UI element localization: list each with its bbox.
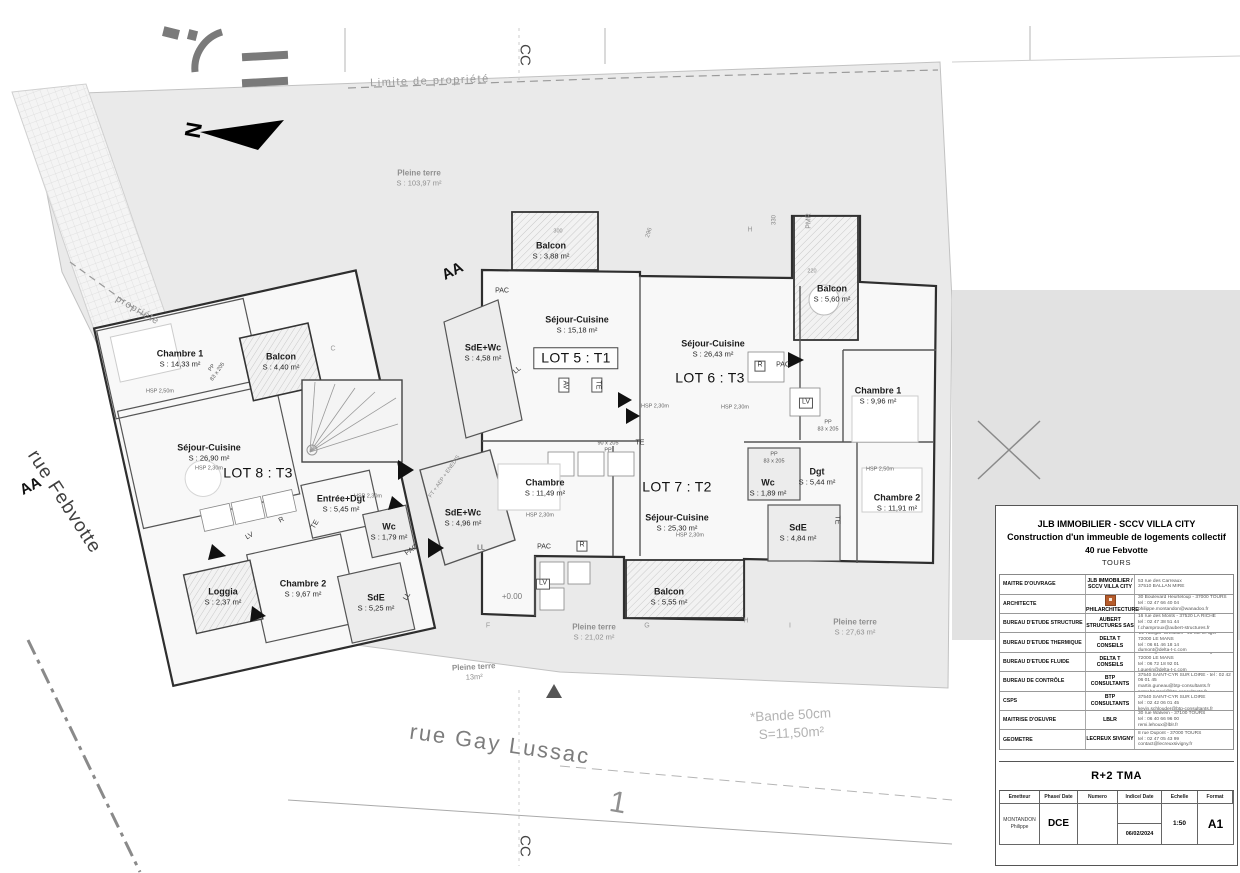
stakeholder-row-controle: BUREAU DE CONTRÔLE BTP CONSULTANTS 2 ave… bbox=[1000, 672, 1233, 691]
room-label-lot6-balcon: BalconS : 5,60 m² bbox=[814, 284, 851, 305]
project-address: 40 rue Febvotte bbox=[1001, 545, 1232, 555]
stakeholder-row-geometre: GEOMETRE LECREUX SIVIGNY 8 rue Dupont - … bbox=[1000, 730, 1233, 749]
emission-echelle: 1:50 bbox=[1162, 804, 1198, 844]
emission-header-emetteur: Emetteur bbox=[1000, 791, 1040, 804]
room-label-lot7-balcon: BalconS : 5,55 m² bbox=[651, 587, 688, 608]
equipment-r: R bbox=[754, 361, 765, 372]
balcony-lot6 bbox=[794, 216, 858, 340]
pleine-terre-sw: Pleine terre 13m² bbox=[452, 661, 497, 683]
room-label-lot6-dgt: DgtS : 5,44 m² bbox=[799, 467, 836, 488]
hsp-note: HSP 2,30m bbox=[676, 533, 704, 540]
title-block: JLB IMMOBILIER - SCCV VILLA CITY Constru… bbox=[995, 505, 1238, 866]
dim-300: 300 bbox=[553, 229, 562, 236]
room-label-lot8-balcon: BalconS : 4,40 m² bbox=[263, 352, 300, 373]
hsp-note: HSP 2,50m bbox=[866, 467, 894, 474]
emission-emetteur: MONTANDON Philippe bbox=[1000, 804, 1040, 844]
section-mark-cc-bottom: CC bbox=[515, 835, 534, 857]
stakeholder-row-fluide: BUREAU D'ETUDE FLUIDE DELTA T CONSEILS '… bbox=[1000, 653, 1233, 672]
room-label-lot6-sejour: Séjour-CuisineS : 26,43 m² bbox=[681, 339, 745, 360]
pleine-terre-south: Pleine terre S : 21,02 m² bbox=[572, 622, 616, 641]
grid-letter-f: F bbox=[486, 623, 490, 632]
bande-label: *Bande 50cm S=11,50m² bbox=[750, 704, 833, 743]
room-label-lot7-sdewc: SdE+WcS : 4,96 m² bbox=[445, 508, 482, 529]
hsp-note: HSP 2,30m bbox=[354, 494, 382, 501]
emission-indice: 06/02/2024 bbox=[1118, 804, 1162, 844]
stakeholder-row-maitre-ouvrage: MAITRE D'OUVRAGE JLB IMMOBILIER / SCCV V… bbox=[1000, 575, 1233, 594]
lot-label-lot7: LOT 7 : T2 bbox=[642, 478, 711, 496]
project-name: JLB IMMOBILIER - SCCV VILLA CITY bbox=[1001, 518, 1232, 531]
stakeholder-row-csps: CSPS BTP CONSULTANTS 2 avenue Pierre Gil… bbox=[1000, 692, 1233, 711]
room-label-lot7-sejour: Séjour-CuisineS : 25,30 m² bbox=[645, 513, 709, 534]
emission-numero bbox=[1078, 804, 1118, 844]
dim-330: 330 bbox=[771, 215, 779, 225]
emission-format: A1 bbox=[1198, 804, 1233, 844]
grid-letter-h-top: H bbox=[747, 227, 752, 236]
equipment-pac: PAC bbox=[776, 362, 790, 371]
stair-core bbox=[302, 380, 402, 462]
equipment-ll: LL bbox=[477, 545, 485, 554]
level-label: +0.00 bbox=[502, 592, 522, 602]
stakeholder-row-structure: BUREAU D'ETUDE STRUCTURE AUBERT STRUCTUR… bbox=[1000, 614, 1233, 633]
equipment-pac: PAC bbox=[495, 288, 509, 297]
project-description: Construction d'un immeuble de logements … bbox=[1001, 531, 1232, 544]
grid-letter-h: H bbox=[743, 618, 748, 627]
north-boundary-lines bbox=[345, 26, 1240, 72]
room-label-lot8-loggia: LoggiaS : 2,37 m² bbox=[205, 587, 242, 608]
hsp-note: HSP 2,30m bbox=[721, 405, 749, 412]
dim-220: 220 bbox=[807, 269, 816, 276]
room-label-lot6-chambre1: Chambre 1S : 9,96 m² bbox=[855, 386, 902, 407]
hsp-note: HSP 2,30m bbox=[195, 466, 223, 473]
stakeholder-row-moe: MAITRISE D'OEUVRE LBLR 30 rue Walvein - … bbox=[1000, 711, 1233, 730]
stakeholder-row-architecte: ARCHITECTE PHILARCHITECTURE 30 Boulevard… bbox=[1000, 595, 1233, 614]
hsp-note: HSP 2,30m bbox=[641, 404, 669, 411]
equipment-lv: LV bbox=[799, 398, 813, 409]
lot-label-lot8: LOT 8 : T3 bbox=[223, 464, 292, 482]
door-note-pp90: 90 x 205PP bbox=[597, 440, 618, 453]
room-label-lot6-wc: WcS : 1,89 m² bbox=[750, 478, 787, 499]
equipment-te: TE bbox=[832, 516, 841, 525]
room-label-lot6-chambre2: Chambre 2S : 11,91 m² bbox=[874, 493, 921, 514]
room-label-lot8-wc: WcS : 1,79 m² bbox=[371, 522, 408, 543]
equipment-te: TE bbox=[636, 440, 645, 449]
room-label-lot8-chambre2: Chambre 2S : 9,67 m² bbox=[280, 579, 327, 600]
emission-header-echelle: Echelle bbox=[1162, 791, 1198, 804]
emission-indice-date: 06/02/2024 bbox=[1118, 823, 1161, 844]
room-label-lot5-sdewc: SdE+WcS : 4,58 m² bbox=[465, 343, 502, 364]
room-label-lot5-balcon: BalconS : 3,88 m² bbox=[533, 241, 570, 262]
room-label-lot7-chambre: ChambreS : 11,49 m² bbox=[525, 478, 565, 499]
room-label-lot8-sejour: Séjour-CuisineS : 26,90 m² bbox=[177, 443, 241, 464]
emission-header-numero: Numero bbox=[1078, 791, 1118, 804]
room-label-lot8-sde: SdES : 5,25 m² bbox=[358, 593, 395, 614]
emission-header-format: Format bbox=[1198, 791, 1233, 804]
equipment-av: AV bbox=[559, 378, 570, 393]
room-label-lot8-chambre1: Chambre 1S : 14,33 m² bbox=[157, 349, 204, 370]
philarchitecture-logo-icon bbox=[1105, 595, 1116, 606]
existing-building-marks bbox=[162, 26, 288, 87]
grid-letter-i: I bbox=[789, 623, 791, 632]
project-city: TOURS bbox=[1001, 558, 1232, 567]
room-label-lot6-sde: SdES : 4,84 m² bbox=[780, 523, 817, 544]
drawing-title: R+2 TMA bbox=[999, 761, 1234, 791]
hsp-note: HSP 2,30m bbox=[526, 513, 554, 520]
stakeholder-table: MAITRE D'OUVRAGE JLB IMMOBILIER / SCCV V… bbox=[999, 574, 1234, 750]
equipment-te: TE bbox=[592, 378, 603, 393]
lot-label-lot6: LOT 6 : T3 bbox=[675, 369, 744, 387]
pleine-terre-se: Pleine terre S : 27,63 m² bbox=[833, 617, 877, 636]
emission-phase: DCE bbox=[1040, 804, 1078, 844]
equipment-pac: PAC bbox=[537, 544, 551, 553]
door-note-pp83: PP83 x 205 bbox=[763, 451, 784, 464]
grid-letter-c: C bbox=[330, 346, 335, 355]
emission-table: Emetteur Phase/ Date Numero Indice/ Date… bbox=[999, 791, 1234, 845]
lot-label-lot5: LOT 5 : T1 bbox=[533, 347, 618, 369]
floor-plan-sheet: Limite de propriété propriété Pleine ter… bbox=[0, 0, 1240, 873]
equipment-r: R bbox=[576, 541, 587, 552]
section-mark-cc-top: CC bbox=[515, 44, 534, 66]
title-block-project-title: JLB IMMOBILIER - SCCV VILLA CITY Constru… bbox=[999, 509, 1234, 574]
stakeholder-row-thermique: BUREAU D'ETUDE THERMIQUE DELTA T CONSEIL… bbox=[1000, 633, 1233, 652]
door-note-pp83: PP83 x 205 bbox=[817, 419, 838, 432]
emission-header-phase: Phase/ Date bbox=[1040, 791, 1078, 804]
dim-pmr: PMR bbox=[806, 213, 815, 229]
hsp-note: HSP 2,50m bbox=[146, 389, 174, 396]
room-label-lot5-sejour: Séjour-CuisineS : 15,18 m² bbox=[545, 315, 609, 336]
grid-letter-g: G bbox=[644, 623, 649, 632]
pleine-terre-nw: Pleine terre S : 103,97 m² bbox=[396, 168, 441, 187]
equipment-lv: LV bbox=[536, 579, 550, 590]
emission-header-indice: Indice/ Date bbox=[1118, 791, 1162, 804]
